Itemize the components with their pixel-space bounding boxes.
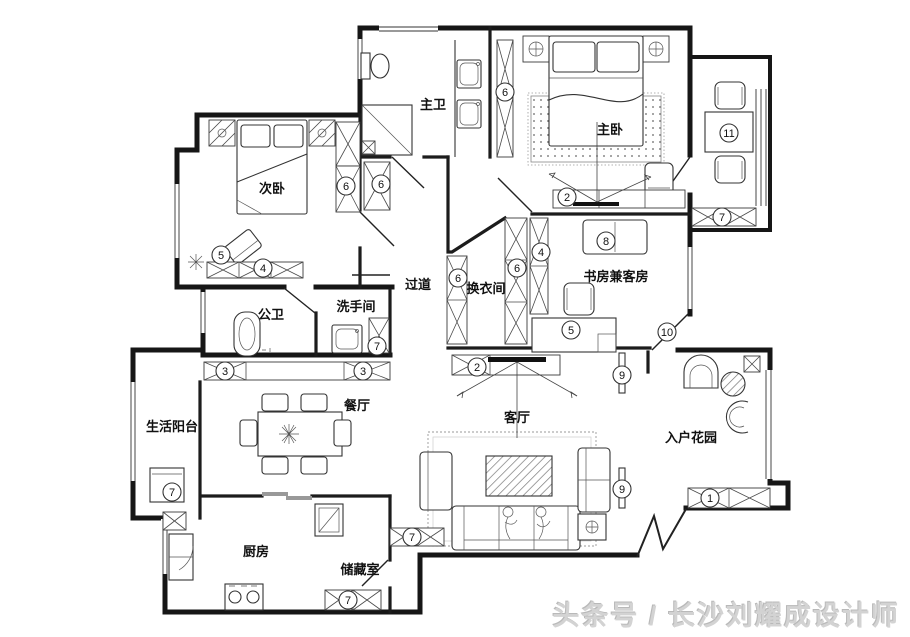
- marker-10-13: 10: [658, 323, 676, 341]
- marker-6-1: 6: [372, 175, 390, 193]
- chair: [224, 228, 263, 265]
- sofa-main: [452, 506, 580, 550]
- marker-1-23: 1: [701, 489, 719, 507]
- room-label-sheng-huo-yang-tai: 生活阳台: [146, 419, 198, 434]
- marker-9-16: 9: [613, 480, 631, 498]
- room-label-xi-shou-jian: 洗手间: [336, 299, 375, 314]
- chair: [334, 420, 351, 446]
- marker-7-20: 7: [163, 483, 181, 501]
- chair: [715, 156, 745, 183]
- shower: [362, 105, 412, 155]
- toilet: [361, 53, 389, 79]
- svg-text:7: 7: [409, 532, 415, 544]
- window-balcony-east: [753, 89, 768, 206]
- window-laundry-balcony: [129, 382, 137, 481]
- svg-text:5: 5: [568, 325, 574, 337]
- svg-text:2: 2: [564, 192, 570, 204]
- svg-text:4: 4: [538, 247, 544, 259]
- marker-6-9: 6: [508, 259, 526, 277]
- window-top: [379, 25, 438, 32]
- wardrobe: [336, 122, 360, 212]
- svg-text:6: 6: [455, 273, 461, 285]
- living-furniture: [390, 353, 625, 550]
- marker-11-6: 11: [720, 124, 738, 142]
- svg-text:7: 7: [169, 487, 175, 499]
- svg-text:6: 6: [378, 179, 384, 191]
- sliding-door-kitchen: [262, 492, 288, 496]
- window-below-balcony: [686, 247, 694, 309]
- room-label-ru-hu-hua-yuan: 入户花园: [665, 430, 717, 445]
- marker-9-15: 9: [613, 366, 631, 384]
- sliding-door-kitchen-2: [286, 496, 312, 500]
- marker-5-3: 5: [212, 246, 230, 264]
- svg-text:11: 11: [723, 128, 734, 140]
- kitchen-sink-unit: [315, 504, 343, 536]
- entry-door-symbol: [637, 509, 686, 557]
- marker-8-11: 8: [597, 232, 615, 250]
- sofa-left: [420, 452, 452, 510]
- marker-7-22: 7: [339, 591, 357, 609]
- svg-text:6: 6: [343, 181, 349, 193]
- sink: [332, 325, 362, 353]
- marker-4-10: 4: [532, 243, 550, 261]
- room-label-huan-yi-jian: 换衣间: [466, 281, 505, 296]
- study-furniture: [530, 218, 647, 352]
- svg-text:9: 9: [619, 484, 625, 496]
- chair: [301, 457, 327, 474]
- svg-text:10: 10: [661, 327, 673, 339]
- floorplan-page: 主卫主卧次卧过道换衣间书房兼客房公卫洗手间生活阳台餐厅客厅入户花园厨房储藏室 6…: [0, 0, 910, 637]
- sink: [457, 60, 481, 88]
- window-bath-public: [199, 292, 207, 333]
- nightstand: [643, 36, 669, 62]
- marker-3-17: 3: [216, 362, 234, 380]
- marker-7-7: 7: [713, 208, 731, 226]
- svg-text:6: 6: [502, 87, 508, 99]
- centerpiece: [279, 424, 299, 444]
- dining-table: [258, 412, 342, 456]
- flue: [163, 512, 186, 530]
- door-bath-master: [392, 157, 424, 188]
- watermark: 头条号 / 长沙刘耀成设计师: [552, 594, 900, 633]
- svg-text:3: 3: [222, 366, 228, 378]
- dining-furniture: [240, 394, 351, 474]
- marker-7-19: 7: [368, 337, 386, 355]
- coffee-table: [486, 456, 552, 496]
- marker-2-5: 2: [558, 188, 576, 206]
- marker-5-12: 5: [562, 321, 580, 339]
- curved-chair: [726, 401, 748, 433]
- svg-text:7: 7: [345, 595, 351, 607]
- round-table: [721, 372, 745, 396]
- marker-3-18: 3: [354, 362, 372, 380]
- sofa-right: [578, 448, 610, 512]
- svg-text:6: 6: [514, 263, 520, 275]
- floor-drain: [262, 348, 270, 352]
- bathtub: [234, 312, 260, 356]
- room-label-zhu-wo: 主卧: [597, 122, 623, 137]
- room-label-zhu-wei: 主卫: [420, 97, 446, 112]
- svg-text:3: 3: [360, 366, 366, 378]
- bed: [237, 120, 307, 214]
- svg-text:7: 7: [719, 212, 725, 224]
- tv: [488, 357, 546, 362]
- window-bedroom2: [173, 184, 181, 258]
- svg-text:1: 1: [707, 493, 713, 505]
- nightstand: [523, 36, 549, 62]
- room-label-gong-wei: 公卫: [258, 307, 284, 322]
- marker-2-14: 2: [468, 358, 486, 376]
- marker-6-0: 6: [337, 177, 355, 195]
- fridge: [169, 534, 193, 580]
- plant-symbol: [188, 254, 204, 270]
- sofa-bed: [583, 220, 647, 254]
- room-label-shu-fang: 书房兼客房: [583, 269, 648, 284]
- svg-text:9: 9: [619, 370, 625, 382]
- marker-6-2: 6: [496, 83, 514, 101]
- door-bedroom2: [360, 212, 394, 246]
- marker-7-21: 7: [403, 528, 421, 546]
- chair: [262, 394, 288, 411]
- shoe-cabinet: [688, 488, 770, 508]
- sink: [457, 100, 481, 128]
- svg-text:2: 2: [474, 362, 480, 374]
- room-label-chu-fang: 厨房: [243, 544, 269, 559]
- side-table: [578, 514, 606, 540]
- room-label-ke-ting: 客厅: [504, 410, 530, 425]
- nightstand: [209, 120, 235, 146]
- svg-text:4: 4: [260, 263, 266, 275]
- marker-4-4: 4: [254, 259, 272, 277]
- door-bedroom-master: [498, 178, 532, 212]
- chair: [240, 420, 257, 446]
- tv: [573, 202, 619, 206]
- stove: [225, 584, 263, 610]
- room-label-ci-wo: 次卧: [259, 181, 285, 196]
- room-label-can-ting: 餐厅: [343, 398, 370, 413]
- svg-text:8: 8: [603, 236, 609, 248]
- room-label-chu-cang-shi: 储藏室: [339, 562, 379, 577]
- window-entry-garden: [763, 370, 776, 479]
- balcony-furniture: [692, 82, 756, 226]
- bench: [684, 355, 718, 388]
- door-bath-public: [284, 288, 315, 313]
- nightstand: [309, 120, 335, 146]
- floor-plan: 主卫主卧次卧过道换衣间书房兼客房公卫洗手间生活阳台餐厅客厅入户花园厨房储藏室 6…: [0, 0, 910, 637]
- desk-chair: [564, 283, 594, 315]
- chair: [262, 457, 288, 474]
- svg-text:5: 5: [218, 250, 224, 262]
- marker-6-8: 6: [449, 269, 467, 287]
- room-label-guo-dao: 过道: [405, 277, 431, 292]
- svg-text:7: 7: [374, 341, 380, 353]
- chair: [301, 394, 327, 411]
- corner-box: [744, 356, 760, 372]
- chair: [715, 82, 745, 109]
